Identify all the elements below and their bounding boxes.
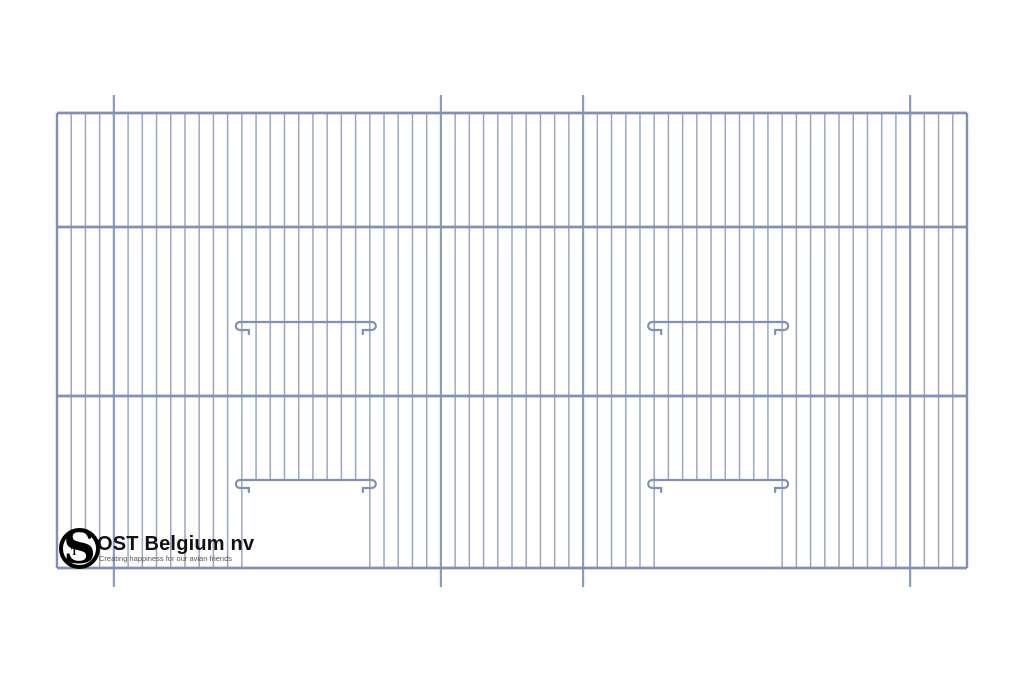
vertical-wires (57, 113, 967, 568)
logo-text-block: OST Belgium nv Creating happiness for ou… (97, 528, 254, 563)
company-name: OST Belgium nv (97, 535, 254, 554)
company-tagline: Creating happiness for our avian friends (99, 554, 254, 563)
door-rail (236, 480, 376, 492)
perch-rail (648, 322, 788, 334)
monogram-letter-s: S (63, 525, 96, 570)
cage-front-panel-drawing (0, 0, 1024, 683)
company-logo: S T OST Belgium nv Creating happiness fo… (59, 528, 254, 569)
ost-monogram-icon: S T (59, 528, 100, 569)
door-rail (648, 480, 788, 492)
drawing-canvas: S T OST Belgium nv Creating happiness fo… (0, 0, 1024, 683)
monogram-letter-t: T (71, 548, 78, 558)
perch-rail (236, 322, 376, 334)
